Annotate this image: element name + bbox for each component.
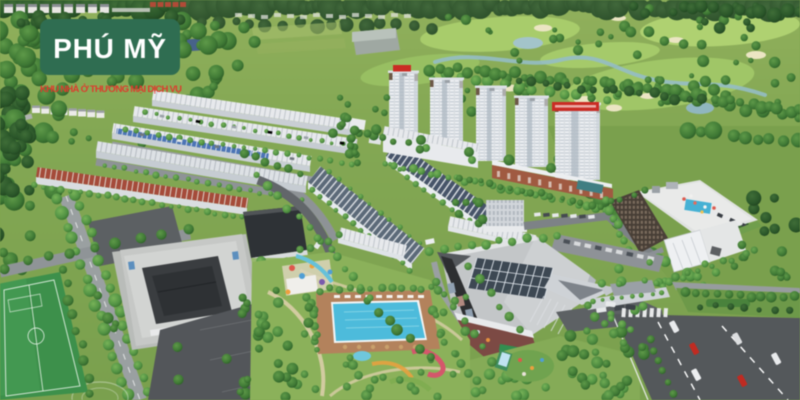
svg-text:KHU NHÀ Ở THƯƠNG MẠI DỊCH VỤ: KHU NHÀ Ở THƯƠNG MẠI DỊCH VỤ	[40, 83, 182, 95]
svg-text:PHÚ MỸ: PHÚ MỸ	[53, 33, 167, 64]
